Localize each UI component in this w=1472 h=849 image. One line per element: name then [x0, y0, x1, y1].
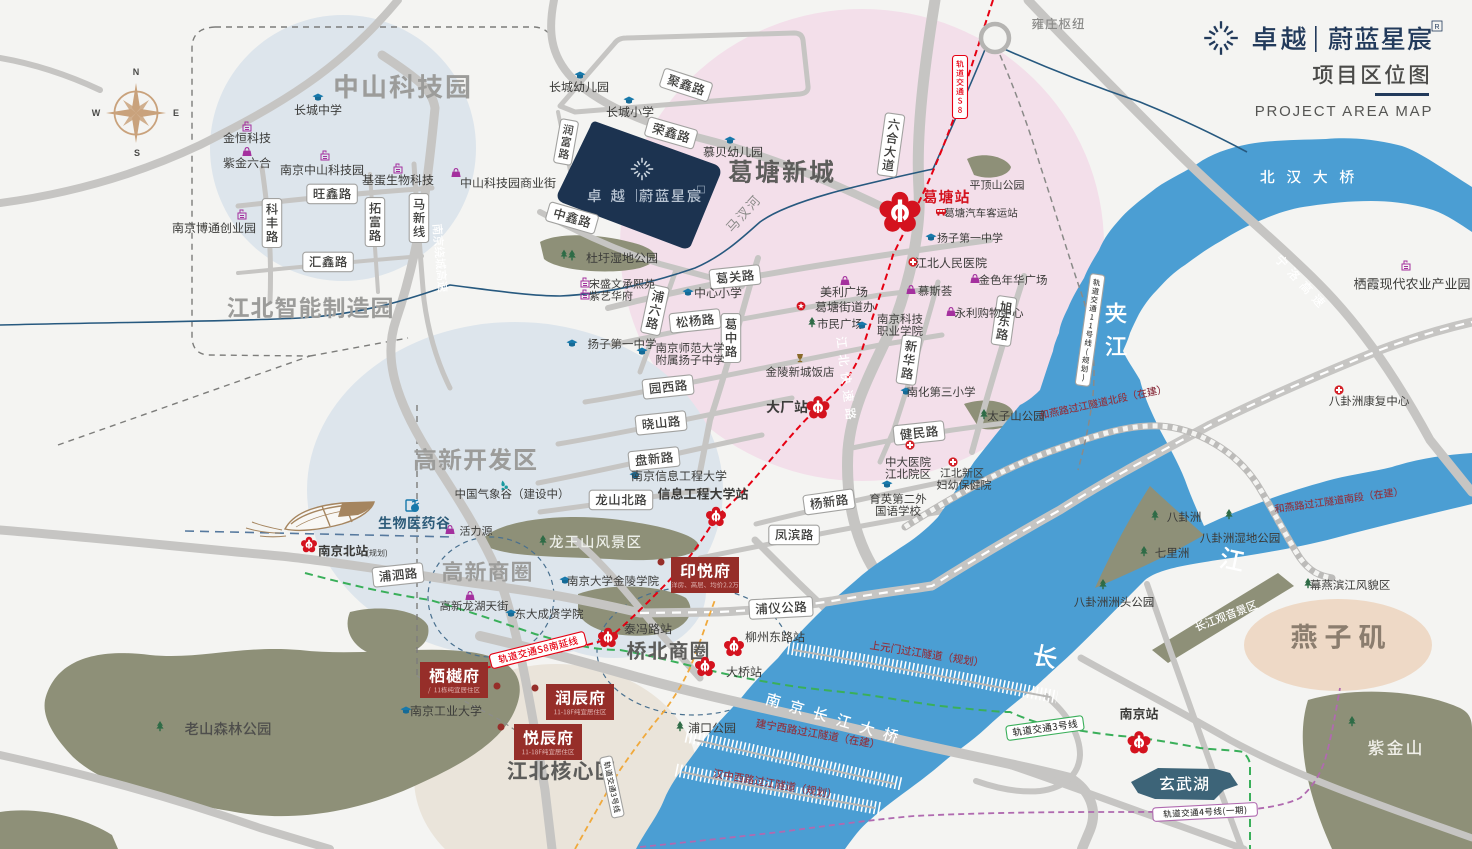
- svg-text:R: R: [1434, 24, 1439, 31]
- svg-text:E: E: [173, 108, 179, 118]
- svg-text:N: N: [133, 67, 140, 77]
- svg-text:S: S: [134, 148, 140, 158]
- svg-text:W: W: [92, 108, 101, 118]
- svg-text:PROJECT AREA MAP: PROJECT AREA MAP: [1255, 103, 1434, 120]
